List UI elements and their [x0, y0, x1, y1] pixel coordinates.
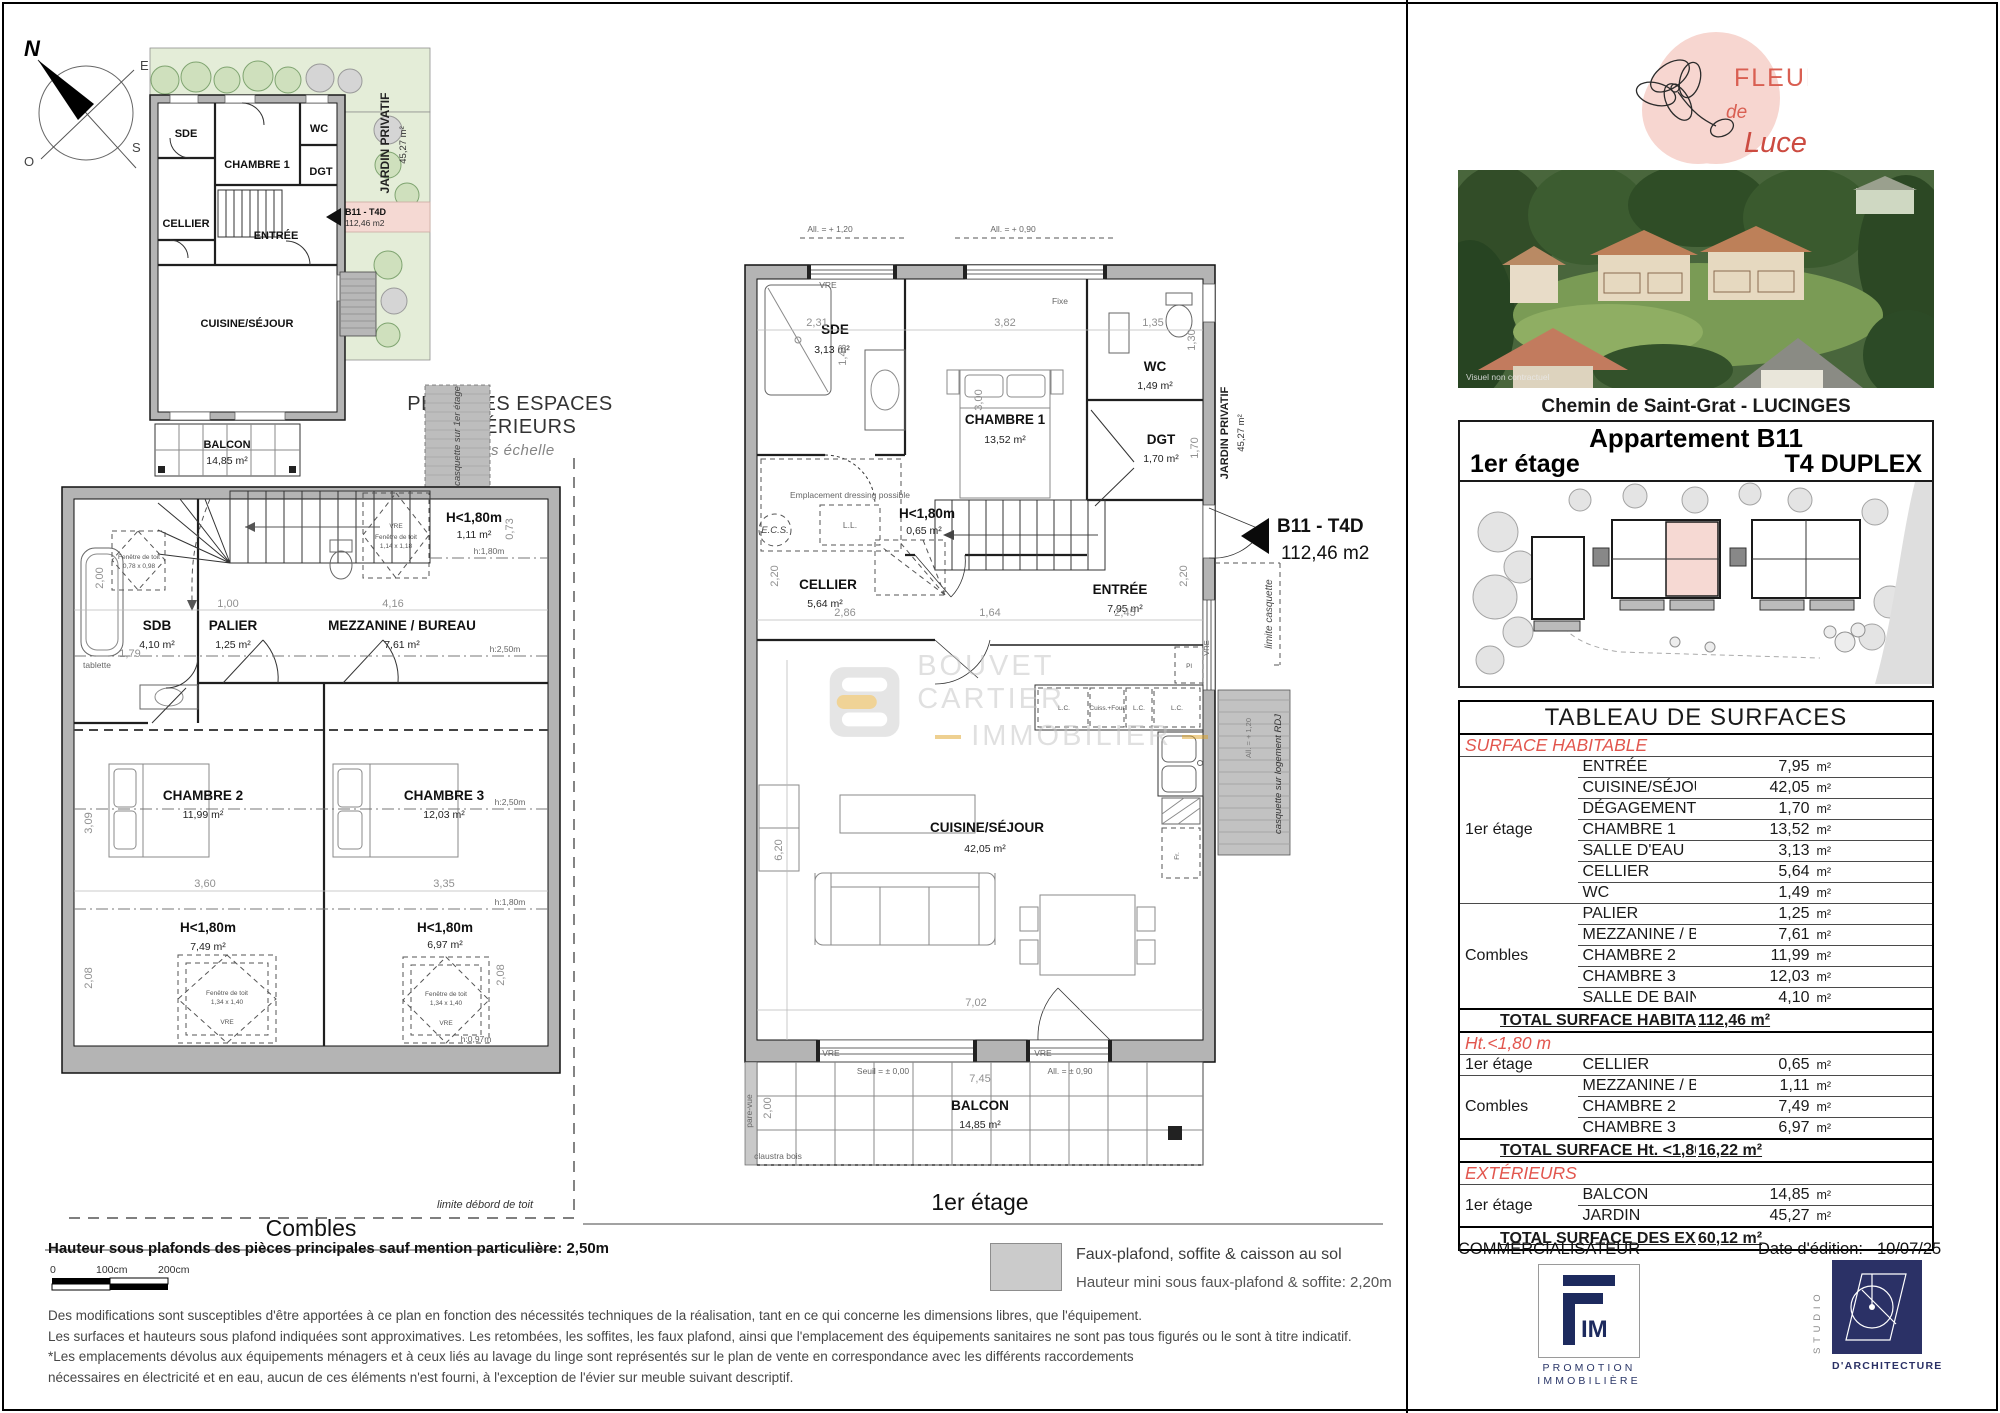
dim-170: 1,70	[1189, 437, 1201, 458]
label-jardin-area: 45,27 m²	[1236, 414, 1247, 452]
dim-220l: 2,20	[769, 565, 781, 586]
legend-line1: Faux-plafond, soffite & caisson au sol	[1076, 1246, 1342, 1264]
label-wc-area: 1,49 m²	[1137, 380, 1173, 392]
watermark-text: BOUVET CARTIER IMMOBILIER	[917, 650, 1208, 753]
label-claustra: claustra bois	[754, 1151, 802, 1161]
disclaimer-line4: nécessaires en électricité et en eau, au…	[48, 1368, 1398, 1389]
label-cellier: CELLIER	[162, 218, 209, 230]
label-casquette-rdj: casquette sur logement RDJ	[1273, 714, 1284, 834]
label-dressing: Emplacement dressing possible	[790, 490, 910, 500]
brand-de: de	[1726, 102, 1747, 123]
plan-sheet: N E S O	[0, 0, 2000, 1413]
label-cellier: CELLIER	[799, 577, 857, 592]
label-chambre1: CHAMBRE 1	[965, 412, 1046, 427]
apartment-type: T4 DUPLEX	[1784, 450, 1922, 479]
legend-line2: Hauteur mini sous faux-plafond & soffite…	[1076, 1274, 1392, 1291]
label-chambre1-area: 13,52 m²	[984, 434, 1026, 446]
site-plan	[1460, 482, 1932, 684]
caption-1er-etage: 1er étage	[931, 1189, 1028, 1215]
dim-620: 6,20	[773, 839, 785, 860]
dim-382: 3,82	[994, 317, 1015, 329]
tag-code: B11 - T4D	[1277, 516, 1364, 537]
legend-swatch	[990, 1243, 1062, 1291]
label-jardin-privatif: JARDIN PRIVATIF	[378, 93, 392, 194]
label-chambre3: CHAMBRE 3	[404, 788, 485, 803]
label-cuisine: CUISINE/SÉJOUR	[201, 317, 294, 330]
dim-702: 7,02	[965, 997, 986, 1009]
dim-100: 1,00	[217, 598, 238, 610]
fim-line2: IMMOBILIÈRE	[1528, 1375, 1650, 1388]
surface-table-title: TABLEAU DE SURFACES	[1459, 701, 1933, 734]
hline-250-a: h:2,50m	[490, 644, 521, 654]
gold-dash-left	[935, 735, 961, 739]
brand-luce: Luce	[1744, 127, 1807, 159]
label-jardin-area: 45,27 m²	[398, 126, 409, 164]
tag-area: 112,46 m2	[345, 218, 385, 228]
disclaimer-line3: *Les emplacements dévolus aux équipement…	[48, 1347, 1398, 1368]
fim-logo: IM	[1538, 1264, 1640, 1358]
skylight4-label: Fenêtre de toit	[425, 991, 467, 998]
dim-179: 1,79	[119, 648, 140, 660]
label-h180-left-area: 7,49 m²	[190, 941, 226, 953]
label-h180-right: H<1,80m	[417, 920, 473, 935]
label-wc: WC	[1144, 359, 1167, 374]
casquette-tab: casquette sur 1er étage	[425, 385, 490, 487]
label-jardin: JARDIN PRIVATIF	[1219, 386, 1231, 479]
fim-logo-icon: IM	[1539, 1265, 1637, 1355]
dim-335: 3,35	[433, 878, 454, 890]
walls	[62, 487, 560, 1073]
section-habitable: SURFACE HABITABLE	[1459, 734, 1933, 757]
dim-286: 2,86	[834, 607, 855, 619]
studio-subtitle: D'ARCHITECTURE	[1832, 1360, 1952, 1372]
table-row: 1er étageENTRÉE7,95m²	[1459, 757, 1933, 778]
dim-135: 1,35	[1142, 317, 1163, 329]
surface-table: TABLEAU DE SURFACES SURFACE HABITABLE 1e…	[1458, 700, 1934, 1251]
label-chambre2: CHAMBRE 2	[163, 788, 243, 803]
label-h180-right-area: 6,97 m²	[427, 939, 463, 951]
label-entree: ENTRÉE	[1093, 582, 1148, 597]
plan-combles: casquette sur 1er étage VRE Fenêtre de t…	[40, 378, 580, 1258]
skylight3-size: 1,34 x 1,40	[211, 999, 244, 1006]
label-dgt-area: 1,70 m²	[1143, 453, 1179, 465]
ceiling-height-note: Hauteur sous plafonds des pièces princip…	[48, 1240, 609, 1257]
skylight4-size: 1,34 x 1,40	[430, 1000, 463, 1007]
apartment-floor: 1er étage	[1470, 450, 1580, 479]
hline-097: h:0,97m	[461, 1034, 492, 1044]
label-wc: WC	[310, 123, 328, 135]
fim-logo-subtitle: PROMOTION IMMOBILIÈRE	[1528, 1362, 1650, 1388]
total-habitable-row: TOTAL SURFACE HABITABLE112,46 m²	[1459, 1009, 1933, 1032]
label-h180-area: 0,65 m²	[906, 525, 942, 537]
dim-300: 3,00	[973, 389, 985, 410]
skylight4-vre: VRE	[439, 1020, 453, 1027]
building	[150, 95, 345, 420]
label-vre-b2: VRE	[1034, 1048, 1052, 1058]
label-ll: L.L.	[843, 520, 857, 530]
dim-245: 2,45	[1114, 607, 1135, 619]
label-sdb-area: 4,10 m²	[139, 639, 175, 651]
total-ht180-row: TOTAL SURFACE Ht. <1,80 m16,22 m²	[1459, 1139, 1933, 1162]
column-divider	[1406, 0, 1408, 1413]
label-balcon: BALCON	[951, 1098, 1009, 1113]
studio-logo-icon	[1832, 1260, 1922, 1354]
label-vre-b1: VRE	[822, 1048, 840, 1058]
watermark: BOUVET CARTIER IMMOBILIER	[828, 650, 1208, 753]
photo-caption: Visuel non contractuel	[1466, 372, 1550, 382]
skylight1-label: Fenêtre de toit	[118, 554, 160, 561]
label-dgt: DGT	[1147, 432, 1176, 447]
skylight2-size: 1,14 x 1,18	[380, 543, 413, 550]
skylight3-label: Fenêtre de toit	[206, 990, 248, 997]
label-all090b: All. = ± 0,90	[1047, 1066, 1092, 1076]
scale-200: 200cm	[158, 1264, 190, 1276]
disclaimer: Des modifications sont susceptibles d'êt…	[48, 1306, 1398, 1388]
label-fixe: Fixe	[1052, 296, 1068, 306]
dim-130: 1,30	[1186, 329, 1198, 350]
dim-220r: 2,20	[1178, 565, 1190, 586]
label-tablette: tablette	[83, 660, 111, 670]
dim-200: 2,00	[762, 1097, 774, 1118]
tag-area: 112,46 m2	[1281, 543, 1369, 564]
label-h180: H<1,80m	[899, 506, 955, 521]
dim-208a: 2,08	[83, 967, 95, 988]
balcony: BALCON 14,85 m² 7,45 2,00 Seuil = ± 0,00…	[744, 1048, 1203, 1165]
dim-309: 3,09	[83, 812, 95, 833]
section-ht180: Ht.<1,80 m	[1459, 1032, 1933, 1055]
skylight1-size: 0,78 x 0,98	[123, 563, 156, 570]
skylight2-label: Fenêtre de toit	[375, 534, 417, 541]
hline-250-b: h:2,50m	[495, 797, 526, 807]
label-entree: ENTRÉE	[254, 229, 299, 242]
scale-100: 100cm	[96, 1264, 128, 1276]
fleur-de-luce-logo: FLEUR de Luce	[1598, 28, 1808, 168]
skylight2-vre: VRE	[389, 523, 403, 530]
scale-bar: 0 100cm 200cm	[48, 1262, 268, 1302]
label-ecs: E.C.S.	[761, 525, 788, 536]
label-chambre3-area: 12,03 m²	[423, 809, 465, 821]
watermark-logo-icon	[828, 660, 901, 744]
label-all090: All. = + 0,90	[990, 224, 1036, 234]
right-annotations: JARDIN PRIVATIF 45,27 m² limite casquett…	[1202, 386, 1369, 855]
exterior-stair	[340, 272, 376, 336]
dim-360: 3,60	[194, 878, 215, 890]
dim-143: 1,43	[837, 344, 849, 365]
watermark-line2: IMMOBILIER	[971, 720, 1172, 753]
label-h180-top: H<1,80m	[446, 510, 502, 525]
label-pare-vue: pare-vue	[744, 1094, 754, 1128]
fim-im-text: IM	[1581, 1316, 1608, 1343]
table-row: 1er étageCELLIER0,65m²	[1459, 1055, 1933, 1076]
dim-416: 4,16	[382, 598, 403, 610]
hline-180-b: h:1,80m	[495, 897, 526, 907]
label-vre-t: VRE	[819, 280, 837, 290]
label-chambre1: CHAMBRE 1	[224, 159, 289, 171]
label-all120-right: All. = + 1,20	[1244, 718, 1253, 758]
label-cuisine-area: 42,05 m²	[964, 843, 1006, 855]
label-seuil: Seuil = ± 0,00	[857, 1066, 909, 1076]
label-mezzanine: MEZZANINE / BUREAU	[328, 618, 476, 633]
label-dgt: DGT	[309, 166, 333, 178]
gold-dash-right	[1182, 735, 1208, 739]
dim-200: 2,00	[94, 567, 106, 588]
apartment-title-box: Appartement B11 1er étage T4 DUPLEX	[1458, 420, 1934, 482]
skylight3-vre: VRE	[220, 1019, 234, 1026]
dim-164: 1,64	[979, 607, 1000, 619]
studio-vertical-text: STUDIO	[1812, 1262, 1823, 1354]
edition-date: Date d'édition:10/07/25	[1758, 1240, 1941, 1259]
label-cuisine: CUISINE/SÉJOUR	[930, 820, 1044, 835]
label-palier-area: 1,25 m²	[215, 639, 251, 651]
hline-180-top: h:1,80m	[474, 546, 505, 556]
commercialisateur-label: COMMERCIALISATEUR	[1458, 1240, 1640, 1259]
label-all120: All. = + 1,20	[807, 224, 853, 234]
scale-0: 0	[50, 1264, 56, 1276]
dim-745: 7,45	[969, 1073, 990, 1085]
label-fr: Fr.	[1174, 852, 1181, 860]
brand-fleur: FLEUR	[1734, 64, 1808, 92]
fim-line1: PROMOTION	[1528, 1362, 1650, 1375]
label-h180-top-area: 1,11 m²	[457, 529, 492, 541]
label-palier: PALIER	[209, 618, 258, 633]
disclaimer-line2: Les surfaces et hauteurs sous plafond in…	[48, 1327, 1398, 1348]
label-chambre2-area: 11,99 m²	[183, 809, 224, 821]
label-balcon-area: 14,85 m²	[959, 1119, 1001, 1131]
project-address: Chemin de Saint-Grat - LUCINGES	[1458, 396, 1934, 418]
label-h180-left: H<1,80m	[180, 920, 236, 935]
table-row: 1er étageBALCON14,85m²	[1459, 1185, 1933, 1206]
table-row: ComblesPALIER1,25m²	[1459, 904, 1933, 925]
dim-231: 2,31	[806, 317, 827, 329]
table-row: ComblesMEZZANINE / BUREAU1,11m²	[1459, 1076, 1933, 1097]
project-photo: Visuel non contractuel	[1458, 170, 1934, 388]
site-plan-box	[1458, 482, 1934, 688]
studio-logo	[1832, 1260, 1922, 1354]
label-mezzanine-area: 7,61 m²	[384, 639, 420, 651]
label-sdb: SDB	[143, 618, 172, 633]
dim-208b: 2,08	[495, 964, 507, 985]
dim-073: 0,73	[504, 518, 516, 539]
label-casquette-1er: casquette sur 1er étage	[452, 386, 463, 486]
watermark-line1: BOUVET CARTIER	[917, 650, 1208, 716]
disclaimer-line1: Des modifications sont susceptibles d'êt…	[48, 1306, 1398, 1327]
tag-code: B11 - T4D	[345, 207, 387, 217]
section-exterieurs: EXTÉRIEURS	[1459, 1162, 1933, 1185]
label-limite-casquette: limite casquette	[1264, 579, 1275, 649]
label-limite-debord: limite débord de toit	[437, 1199, 534, 1211]
caption-combles: Combles	[266, 1215, 357, 1241]
site-landscape	[1670, 623, 1865, 652]
label-sde: SDE	[175, 128, 198, 140]
